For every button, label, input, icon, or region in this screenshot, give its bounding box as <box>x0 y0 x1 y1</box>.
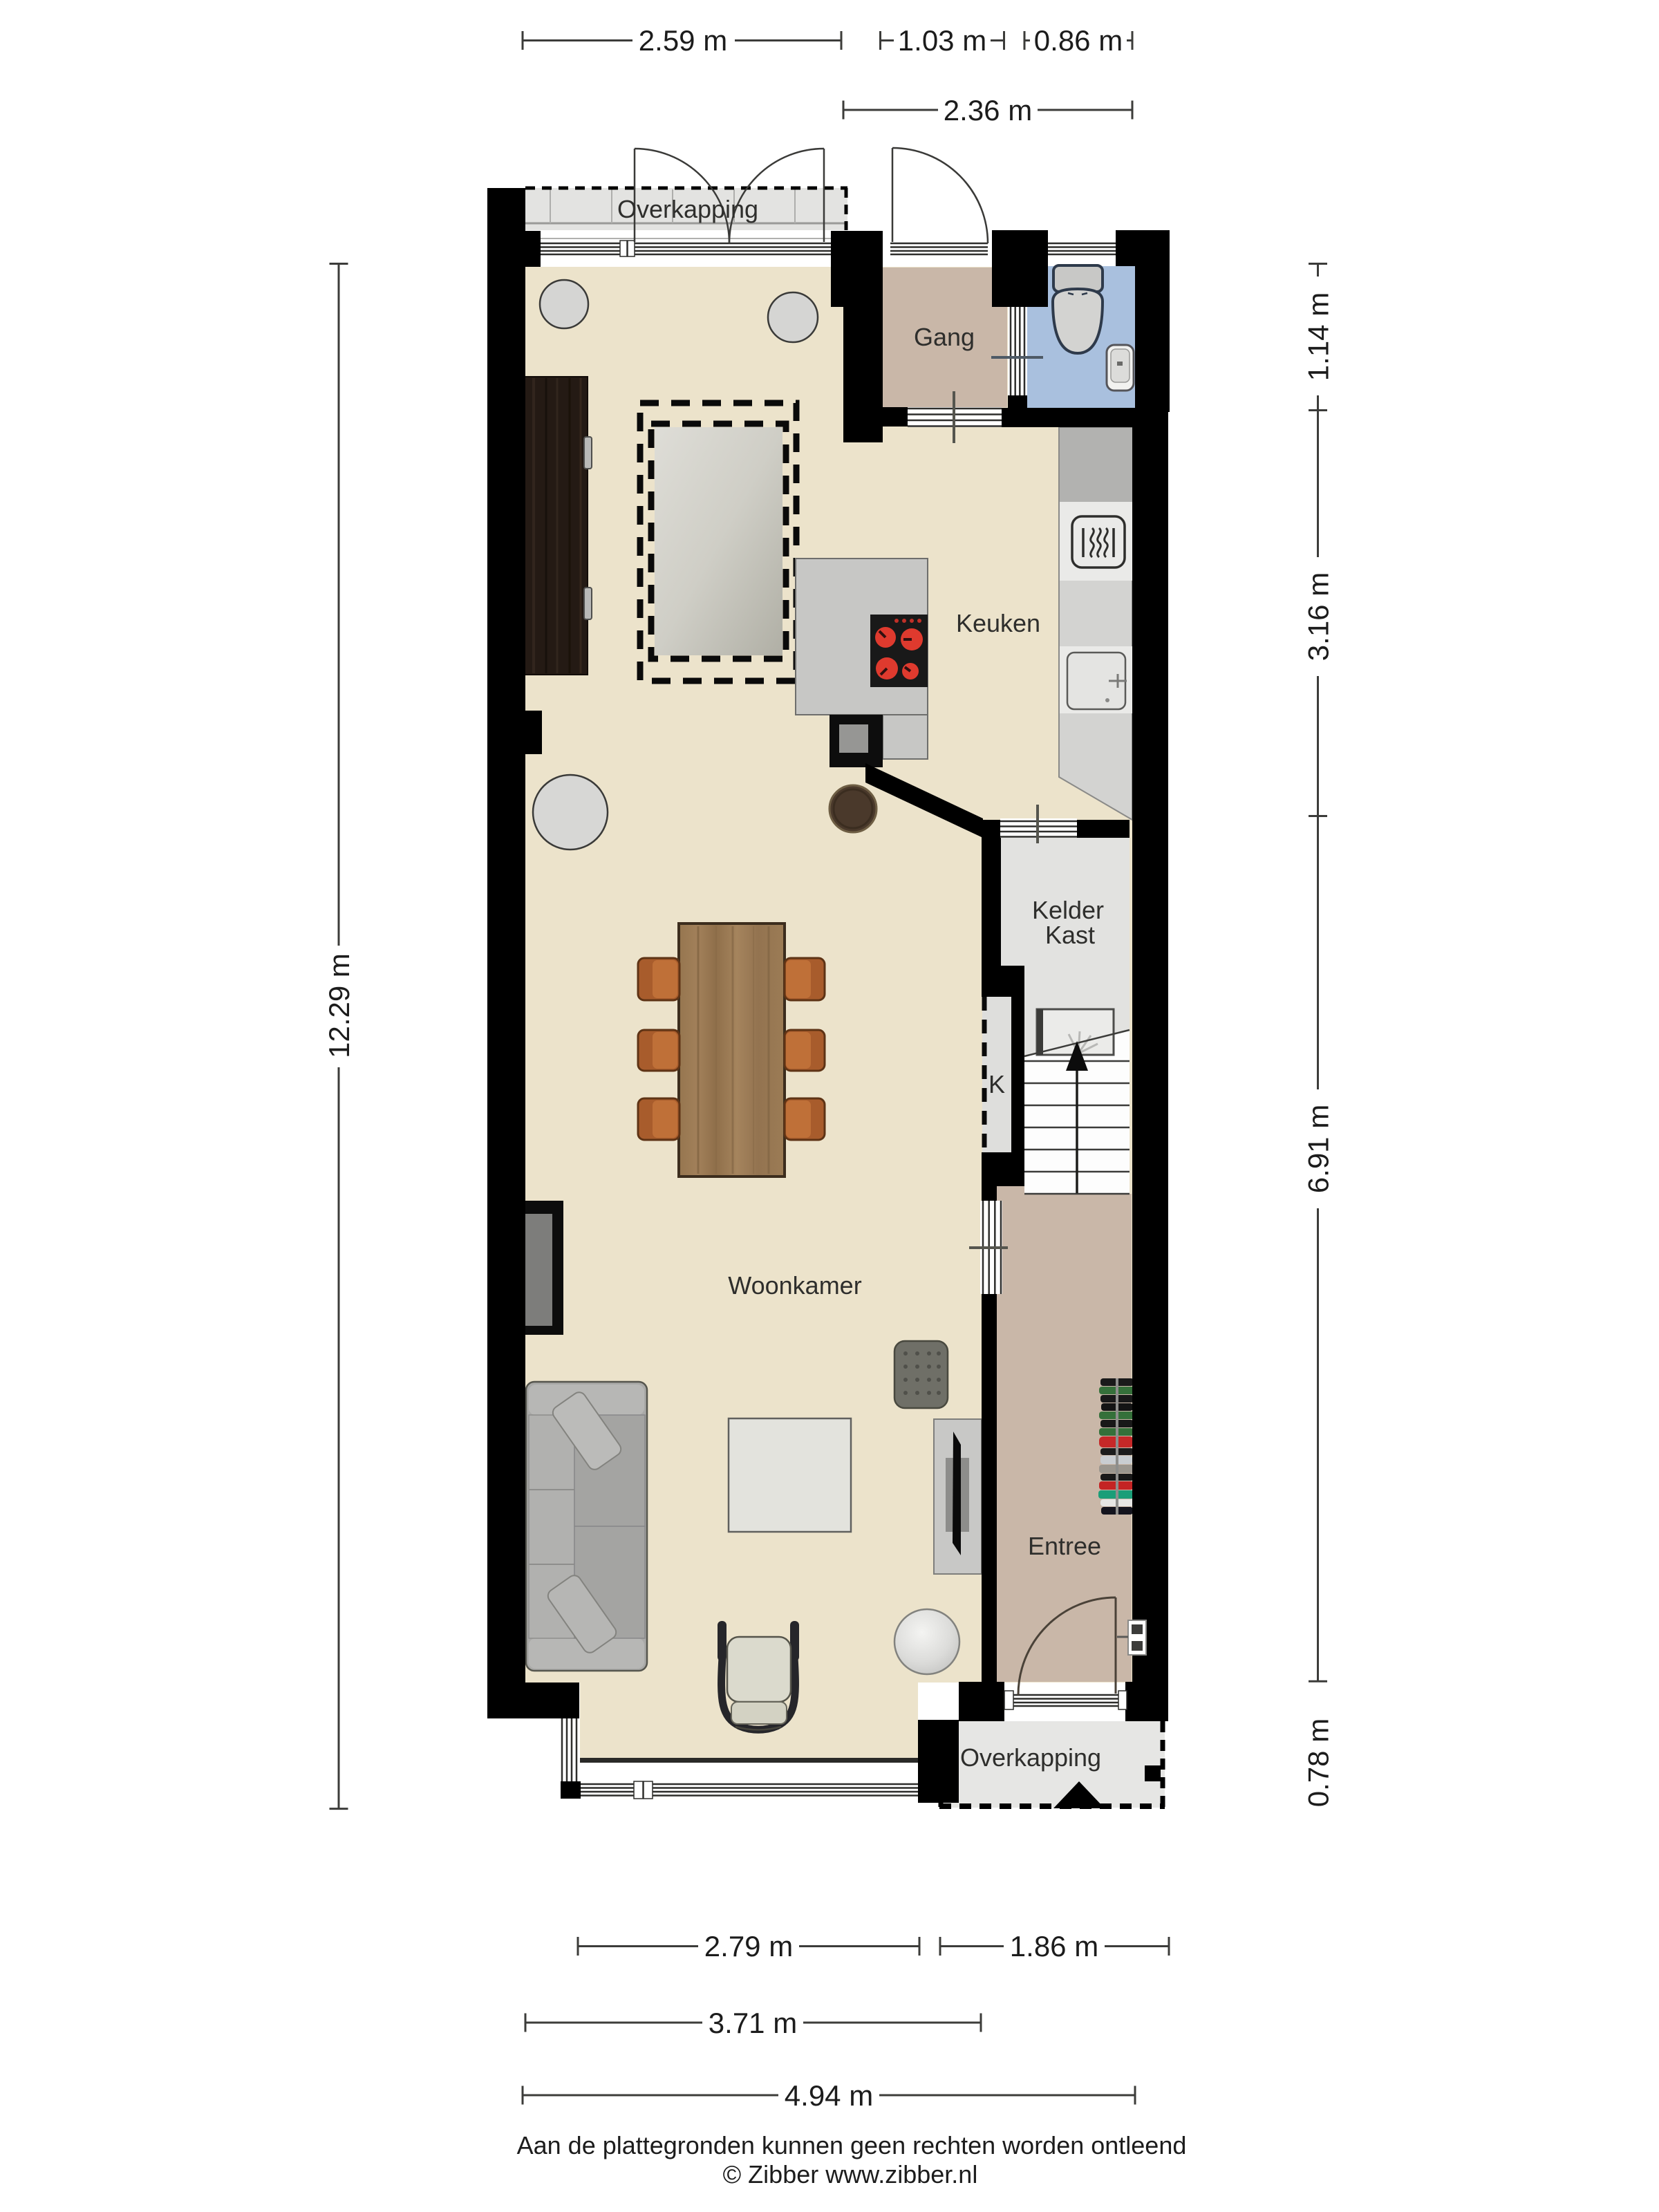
svg-text:3.71 m: 3.71 m <box>709 2007 797 2039</box>
svg-text:© Zibber www.zibber.nl: © Zibber www.zibber.nl <box>723 2160 978 2188</box>
svg-text:0.86 m: 0.86 m <box>1034 24 1123 57</box>
svg-text:2.59 m: 2.59 m <box>639 24 727 57</box>
svg-text:K: K <box>988 1070 1005 1098</box>
svg-text:1.03 m: 1.03 m <box>898 24 986 57</box>
svg-text:Entree: Entree <box>1028 1532 1101 1560</box>
svg-text:Gang: Gang <box>914 323 975 351</box>
svg-text:Overkapping: Overkapping <box>960 1743 1101 1772</box>
svg-text:2.36 m: 2.36 m <box>944 94 1032 126</box>
svg-text:Keuken: Keuken <box>956 609 1040 637</box>
svg-text:12.29 m: 12.29 m <box>323 953 355 1058</box>
svg-text:Aan de plattegronden kunnen ge: Aan de plattegronden kunnen geen rechten… <box>517 2131 1187 2159</box>
svg-text:6.91 m: 6.91 m <box>1302 1105 1335 1193</box>
svg-text:3.16 m: 3.16 m <box>1302 572 1335 661</box>
svg-text:4.94 m: 4.94 m <box>785 2079 873 2112</box>
svg-text:Kelder: Kelder <box>1032 896 1104 924</box>
svg-text:2.79 m: 2.79 m <box>704 1930 793 1962</box>
svg-text:Woonkamer: Woonkamer <box>728 1271 861 1300</box>
svg-text:0.78 m: 0.78 m <box>1302 1718 1335 1807</box>
svg-text:Overkapping: Overkapping <box>617 195 758 223</box>
svg-text:1.86 m: 1.86 m <box>1010 1930 1098 1962</box>
svg-text:Kast: Kast <box>1045 921 1095 949</box>
svg-text:1.14 m: 1.14 m <box>1302 292 1335 381</box>
